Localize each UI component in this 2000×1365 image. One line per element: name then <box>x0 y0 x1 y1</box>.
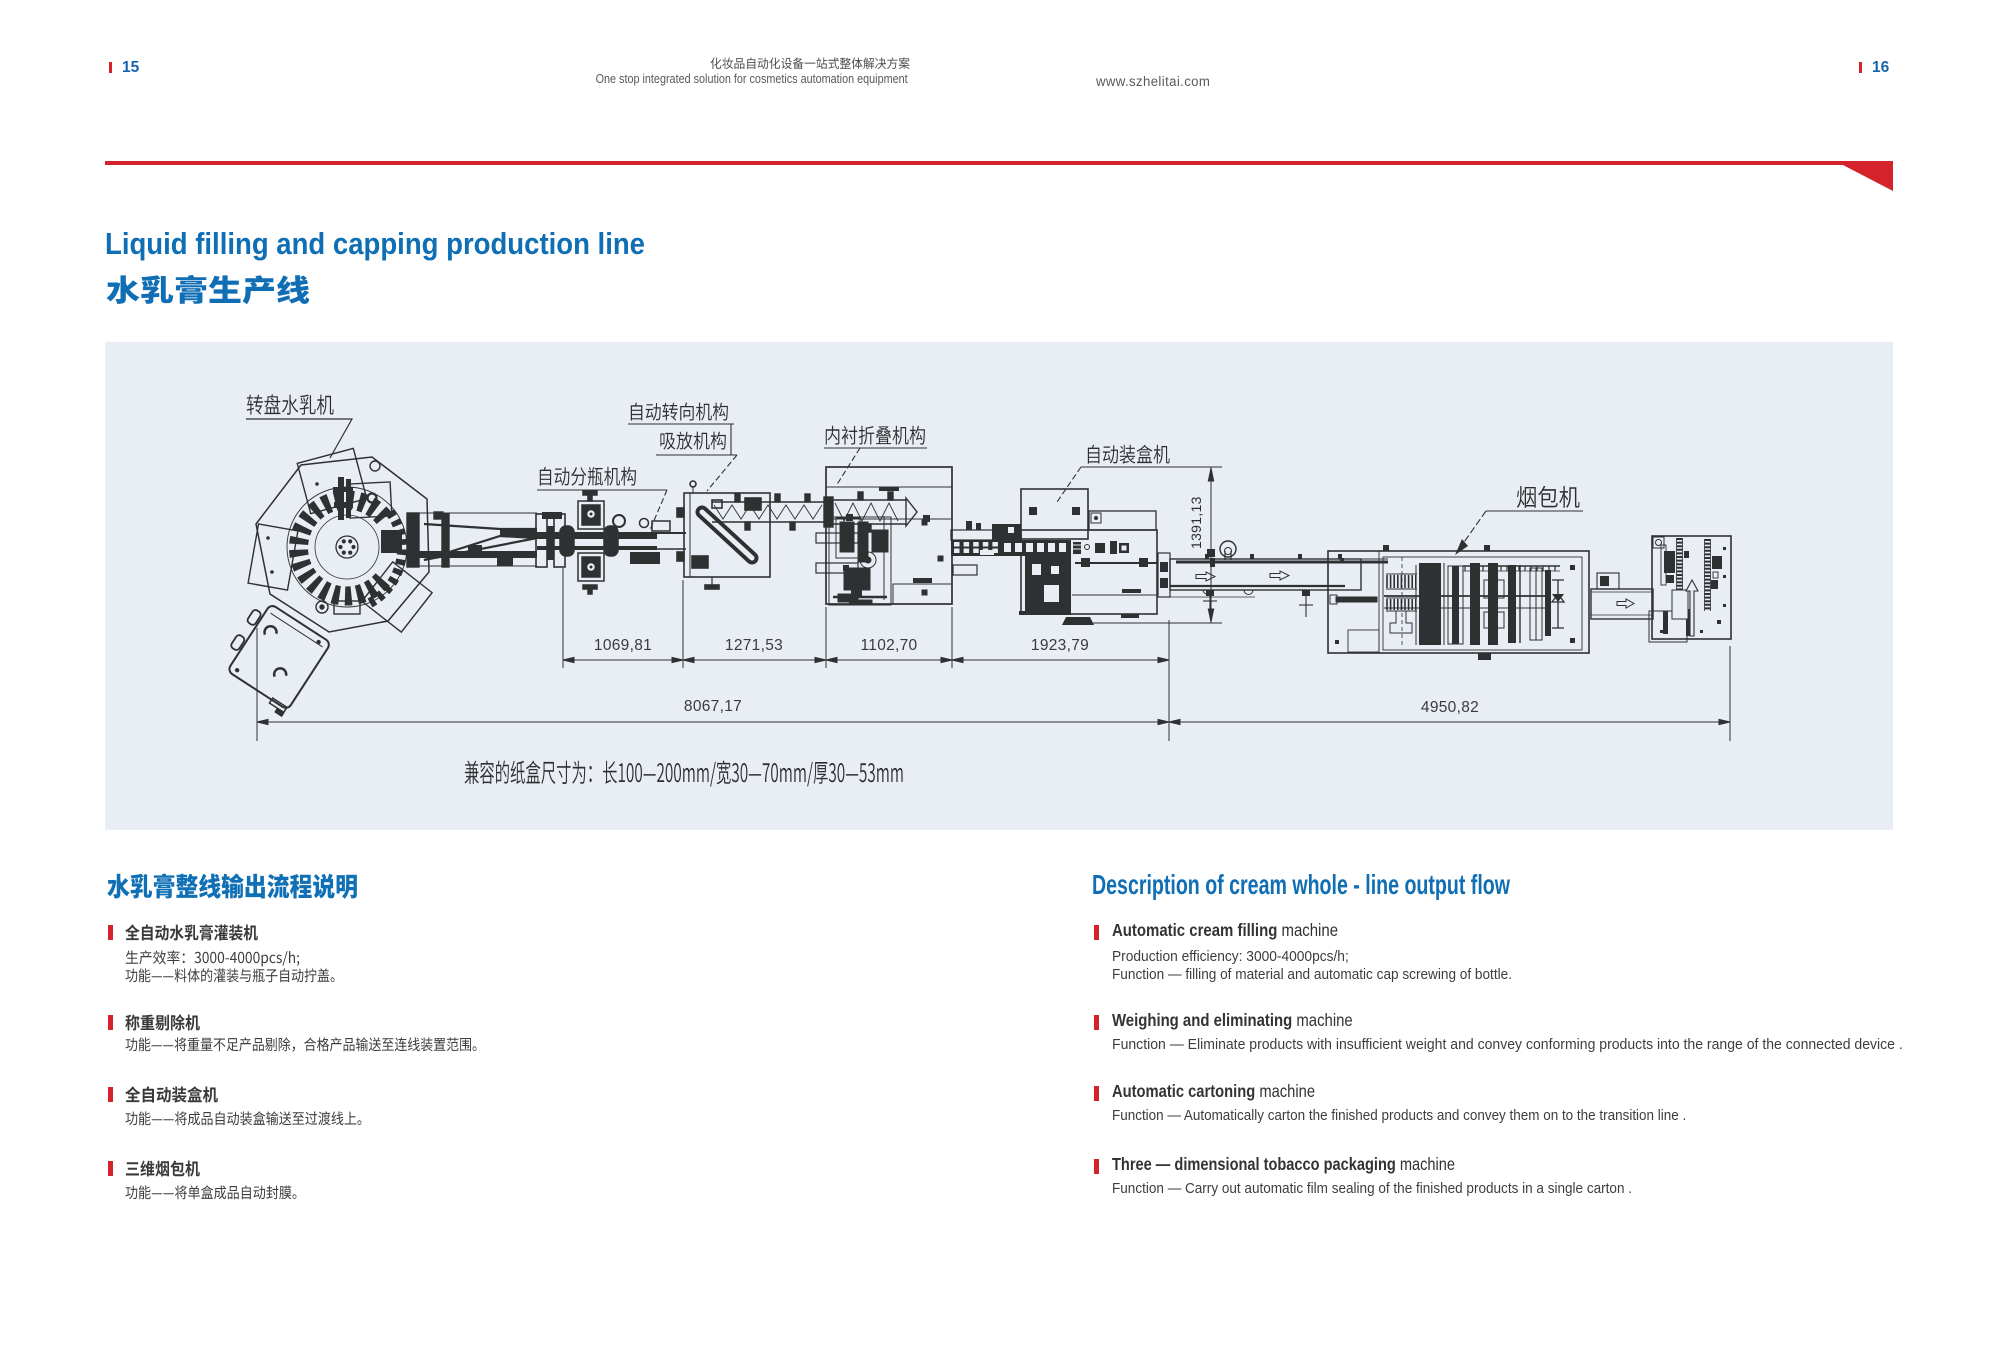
svg-text:1391,13: 1391,13 <box>1188 496 1204 549</box>
svg-text:1102,70: 1102,70 <box>861 637 918 654</box>
svg-text:1923,79: 1923,79 <box>1031 637 1089 654</box>
svg-text:8067,17: 8067,17 <box>684 698 742 715</box>
svg-text:4950,82: 4950,82 <box>1421 699 1479 716</box>
svg-text:1069,81: 1069,81 <box>594 637 652 654</box>
svg-text:1271,53: 1271,53 <box>725 637 783 654</box>
